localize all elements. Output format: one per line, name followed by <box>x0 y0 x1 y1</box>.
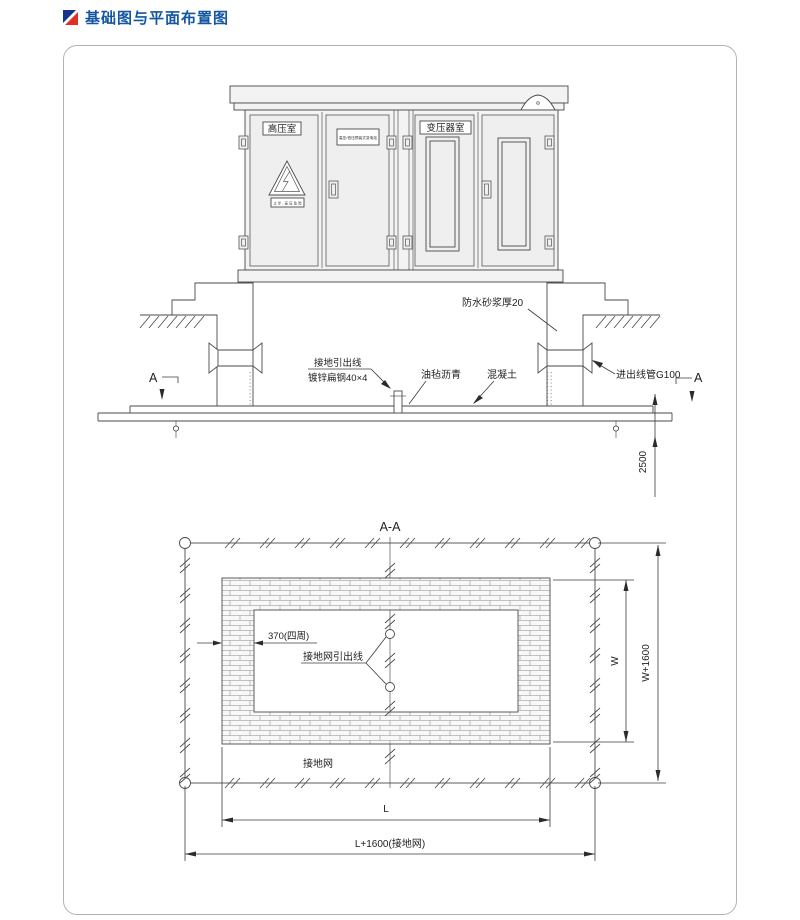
nameplate-text: 高压/低压预装式变电站 <box>339 135 377 140</box>
section-marker-left: A <box>149 371 178 400</box>
wall-thickness-text: 370(四周) <box>268 631 309 642</box>
brick-pier-left <box>172 283 253 406</box>
grid-label: 接地网 <box>303 757 333 770</box>
mortar-strip-right <box>547 370 552 406</box>
base-rail <box>238 270 563 282</box>
hinge <box>239 236 248 249</box>
dim-2500-text: 2500 <box>638 450 649 473</box>
hinge <box>387 236 396 249</box>
ground-lead-label-2: 镀锌扁钢40×4 <box>308 372 367 384</box>
hinge <box>239 136 248 149</box>
dim-l-text: L <box>383 804 389 815</box>
anchor-bolt-left <box>173 421 178 438</box>
dim-2500: 2500 <box>638 394 658 497</box>
mortar-strip-left <box>248 370 253 406</box>
hinge <box>403 236 412 249</box>
transformer-room-label: 变压器室 <box>420 121 471 134</box>
drawing: 高压室 高压/低压预装式变电站 变压器室 止步,高压危险 <box>0 0 800 920</box>
dim-wall-thickness: 370(四周) <box>197 631 317 646</box>
section-marker-right-text: A <box>694 371 703 385</box>
ground-lead-label-1: 接地引出线 <box>314 357 362 369</box>
conduit-sleeve-right <box>538 343 592 373</box>
grid-lead-point <box>386 630 395 639</box>
hinge <box>545 136 554 149</box>
section-marker-left-text: A <box>149 371 158 385</box>
dim-w: W <box>553 580 634 742</box>
brick-pier-right <box>547 283 628 406</box>
handle-left-door <box>329 181 338 198</box>
dim-w-text: W <box>610 656 621 666</box>
anchor-bolt-right <box>613 421 618 438</box>
hinge <box>403 136 412 149</box>
dim-l-total-text: L+1600(接地网) <box>355 837 425 850</box>
grid-lead-point <box>386 683 395 692</box>
grid-lead-callout: 接地网引出线 <box>301 630 395 692</box>
hinge <box>387 136 396 149</box>
door-transformer-left <box>415 115 474 266</box>
dim-l: L <box>222 747 550 827</box>
grid-corner-electrode <box>180 538 191 549</box>
elevation-labels: 防水砂浆厚20 接地引出线 镀锌扁钢40×4 油毡沥青 混凝土 进出线管G100… <box>149 296 703 497</box>
concrete-label: 混凝土 <box>487 368 517 381</box>
elevation-view: 高压室 高压/低压预装式变电站 变压器室 止步,高压危险 <box>98 86 703 497</box>
asphalt-label: 油毡沥青 <box>421 368 461 381</box>
foundation-slab <box>98 391 672 438</box>
nameplate: 高压/低压预装式变电站 <box>337 129 379 145</box>
hv-room-text: 高压室 <box>268 123 297 135</box>
dim-w-total: W+1600 <box>598 543 666 783</box>
grid-lead-text: 接地网引出线 <box>303 650 363 663</box>
mortar-label: 防水砂浆厚20 <box>462 296 524 309</box>
dim-w-total-text: W+1600 <box>641 644 652 682</box>
hv-room-label: 高压室 <box>263 122 301 135</box>
dim-l-total: L+1600(接地网) <box>185 786 595 861</box>
foundation-piers <box>140 283 660 406</box>
substation-roof <box>230 86 568 110</box>
hinge <box>545 236 554 249</box>
plan-section-title: A-A <box>380 520 402 534</box>
substation-body <box>238 110 563 282</box>
page: 基础图与平面布置图 <box>0 0 800 920</box>
ground-lead-bar <box>390 391 406 413</box>
warning-text: 止步,高压危险 <box>274 201 303 206</box>
conduit-label: 进出线管G100 <box>616 368 681 381</box>
transformer-room-text: 变压器室 <box>426 122 464 134</box>
handle-right-door <box>482 181 491 198</box>
